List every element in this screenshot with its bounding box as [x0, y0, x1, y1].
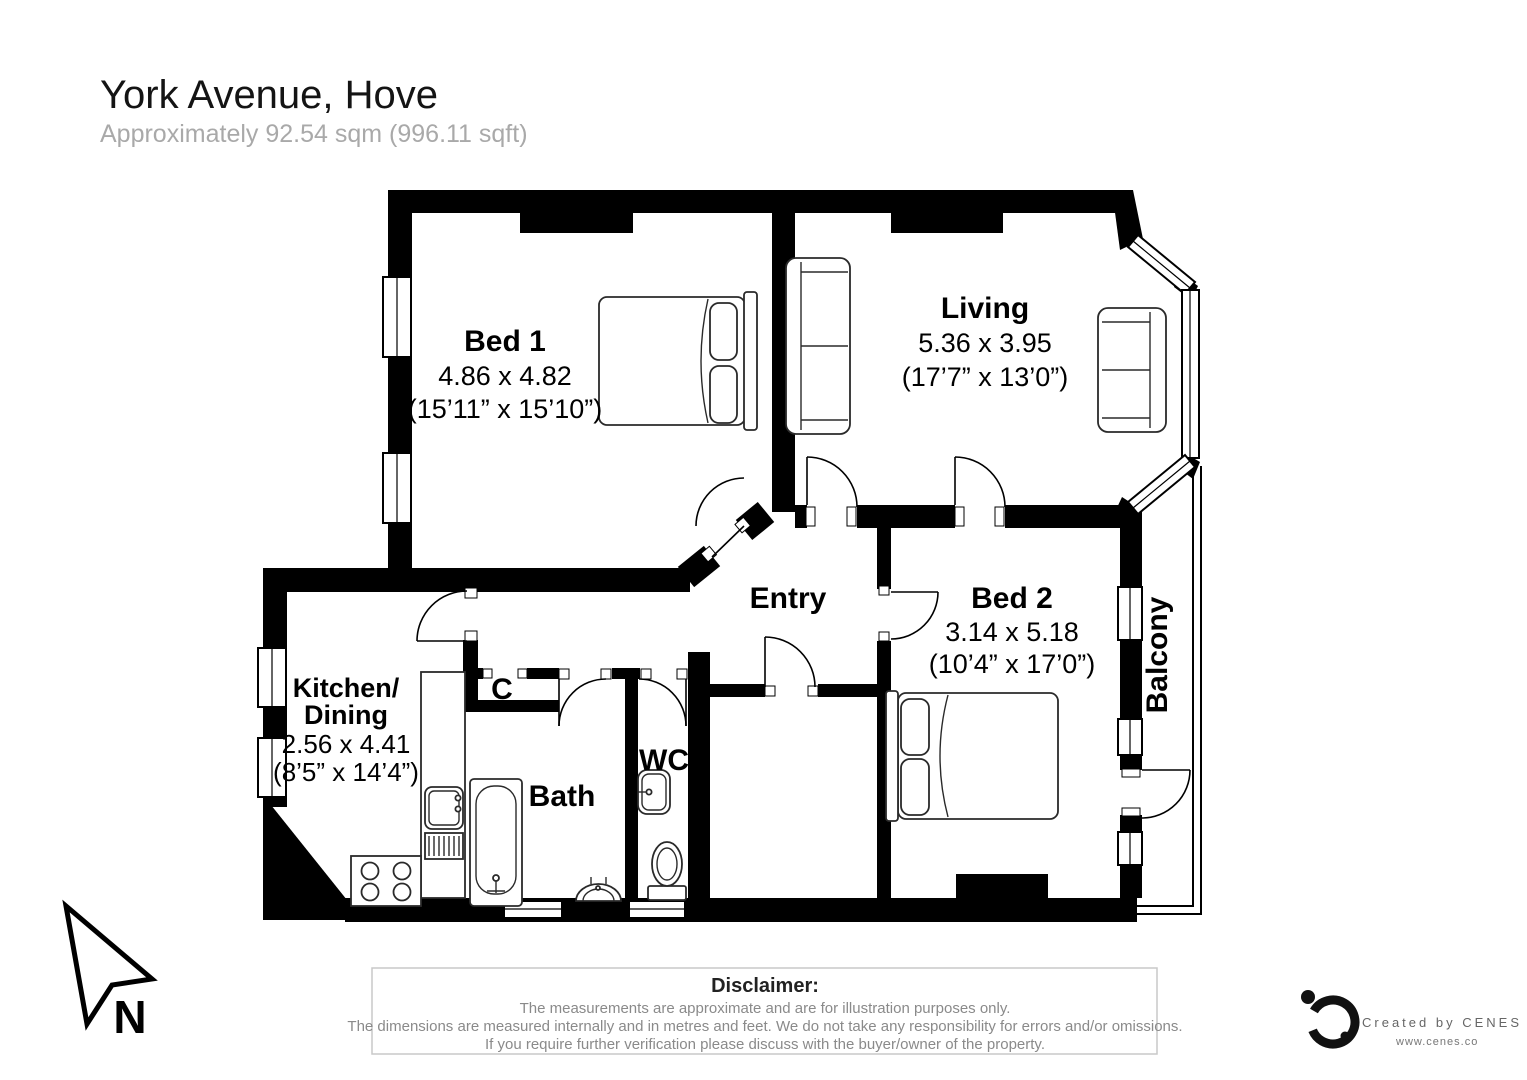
room-label-balcony: Balcony [1141, 596, 1174, 713]
room-label-bed1: Bed 1 4.86 x 4.82 (15’11” x 15’10”) [408, 325, 603, 424]
front-door [765, 637, 815, 687]
disclaimer-line: The dimensions are measured internally a… [347, 1018, 1182, 1035]
disclaimer-line: The measurements are approximate and are… [520, 1000, 1011, 1017]
kitchen-sink [425, 787, 463, 829]
bath-door [559, 679, 606, 726]
room-label-closet: C [491, 673, 513, 706]
wc-door [639, 679, 686, 726]
svg-text:Kitchen/: Kitchen/ [293, 673, 400, 703]
svg-text:Living: Living [941, 292, 1029, 325]
svg-text:4.86 x 4.82: 4.86 x 4.82 [438, 361, 572, 391]
room-label-living: Living 5.36 x 3.95 (17’7” x 13’0”) [902, 292, 1069, 392]
bed2-furniture [886, 691, 1058, 821]
wc-window [629, 901, 685, 918]
living-door-bed2 [955, 457, 1005, 507]
page-subtitle: Approximately 92.54 sqm (996.11 sqft) [100, 120, 528, 148]
bed1-chimney-breast [520, 190, 633, 233]
north-compass: N [66, 906, 152, 1043]
north-label: N [113, 991, 146, 1043]
svg-text:(10’4” x 17’0”): (10’4” x 17’0”) [929, 649, 1096, 679]
svg-text:3.14 x 5.18: 3.14 x 5.18 [945, 617, 1079, 647]
svg-text:Bed 1: Bed 1 [464, 325, 546, 358]
svg-text:(8’5” x 14’4”): (8’5” x 14’4”) [273, 757, 419, 787]
kitchen-drainboard [425, 833, 463, 859]
bed2-headboard [886, 691, 898, 821]
kitchen-door [417, 591, 467, 641]
credit-text: Created by CENES [1362, 1015, 1522, 1030]
svg-text:Bed 2: Bed 2 [971, 582, 1053, 615]
kitchen-counter [421, 672, 465, 898]
bed2-window [1118, 719, 1142, 755]
living-loveseat [1098, 308, 1166, 432]
bed2-pillow [901, 759, 929, 815]
bed1-pillow [710, 366, 737, 423]
bed2-pillow [901, 699, 929, 755]
bed2-window [1118, 832, 1142, 865]
living-chimney-breast [891, 190, 1003, 233]
room-label-bed2: Bed 2 3.14 x 5.18 (10’4” x 17’0”) [929, 582, 1096, 679]
svg-text:Dining: Dining [304, 700, 388, 730]
bed1-headboard [744, 292, 757, 430]
svg-text:5.36 x 3.95: 5.36 x 3.95 [918, 328, 1052, 358]
bay-window-upper [1128, 235, 1195, 294]
balcony-door [1142, 770, 1190, 818]
credit-logo: Created by CENES www.cenes.co [1301, 990, 1522, 1052]
bed2-chimney-breast [956, 874, 1048, 904]
room-label-bath: Bath [529, 780, 596, 813]
floor-plan-page: York Avenue, Hove Approximately 92.54 sq… [0, 0, 1527, 1080]
living-door-entry [807, 457, 857, 507]
bed1-furniture [599, 292, 757, 430]
disclaimer-line: If you require further verification plea… [485, 1036, 1045, 1053]
bay-window-lower [1128, 455, 1195, 514]
toilet [648, 842, 686, 900]
bed1-window [383, 277, 411, 357]
room-label-wc: WC [639, 744, 689, 777]
svg-text:(15’11” x 15’10”): (15’11” x 15’10”) [408, 394, 603, 424]
bath-basin [576, 877, 621, 901]
kitchen-window [258, 648, 286, 707]
disclaimer-heading: Disclaimer: [711, 975, 819, 997]
room-label-entry: Entry [750, 582, 827, 615]
living-sofa [786, 258, 850, 434]
wc-furniture [638, 770, 686, 900]
kitchen-stove [351, 856, 421, 906]
svg-text:(17’7” x 13’0”): (17’7” x 13’0”) [902, 362, 1069, 392]
bed1-door [696, 478, 744, 557]
bed2-door [891, 592, 938, 639]
svg-text:2.56 x 4.41: 2.56 x 4.41 [282, 729, 411, 759]
floor-plan-canvas: York Avenue, Hove Approximately 92.54 sq… [0, 0, 1527, 1080]
credit-url: www.cenes.co [1395, 1036, 1478, 1048]
bed2-window [1118, 587, 1142, 640]
page-title: York Avenue, Hove [100, 73, 438, 117]
bed1-pillow [710, 303, 737, 360]
bathtub [470, 779, 522, 906]
room-label-kitchen: Kitchen/ Dining 2.56 x 4.41 (8’5” x 14’4… [273, 673, 419, 787]
bay-window-center [1182, 290, 1199, 458]
disclaimer-box: Disclaimer: The measurements are approxi… [347, 968, 1182, 1054]
bed1-window [383, 453, 411, 523]
